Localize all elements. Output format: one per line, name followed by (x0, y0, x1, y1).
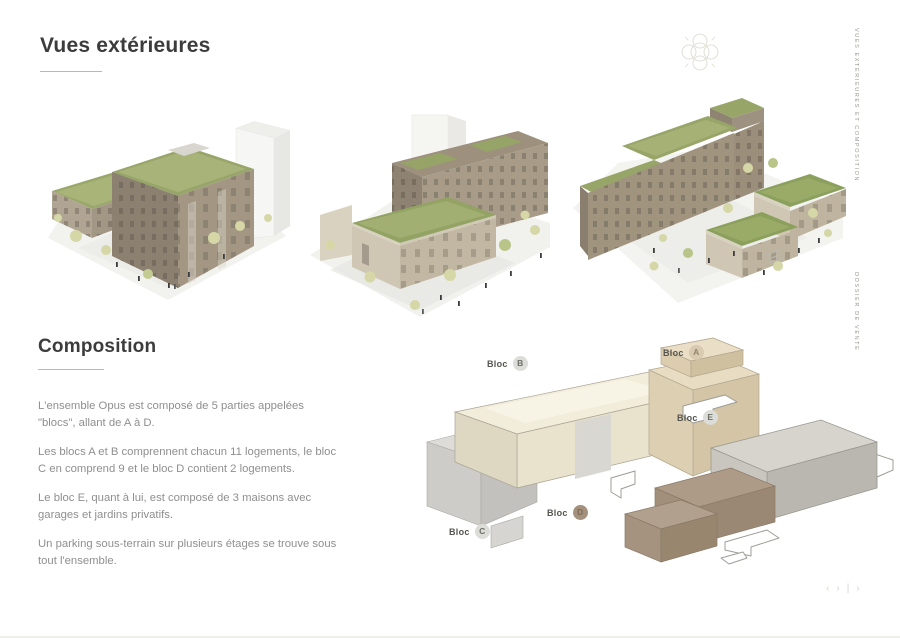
bloc-badge-b: B (513, 356, 528, 371)
bloc-badge-e: E (703, 410, 718, 425)
main-building (112, 143, 254, 288)
brochure-page: Vues extérieures Vues extérieures et com… (0, 0, 900, 638)
composition-paragraph: Un parking sous-terrain sur plusieurs ét… (38, 536, 340, 570)
page-next-icon[interactable]: › (836, 583, 839, 595)
bloc-label-e: Bloc E (677, 410, 718, 425)
pager-divider: | (847, 583, 850, 595)
bloc-label-d: Bloc D (547, 505, 588, 520)
bloc-label-a: Bloc A (663, 345, 704, 360)
bloc-badge-d: D (573, 505, 588, 520)
title-underline (40, 71, 102, 72)
composition-title: Composition (38, 336, 156, 358)
page-prev-icon[interactable]: ‹ (826, 583, 829, 595)
bloc-badge-c: C (475, 524, 490, 539)
pagination: ‹ › | › (826, 583, 860, 595)
blocks-exploded-diagram: Bloc B Bloc A Bloc E Bloc D Bloc C (425, 330, 897, 592)
bloc-word: Bloc (487, 359, 508, 369)
exterior-render-3 (558, 88, 850, 333)
exterior-render-1 (18, 88, 300, 323)
bloc-badge-a: A (689, 345, 704, 360)
page-title: Vues extérieures (40, 34, 211, 58)
rosette-ornament-icon (678, 30, 722, 74)
bloc-label-b: Bloc B (487, 356, 528, 371)
composition-copy: L'ensemble Opus est composé de 5 parties… (38, 398, 340, 582)
bloc-word: Bloc (449, 527, 470, 537)
exterior-render-2 (300, 85, 560, 333)
bloc-label-c: Bloc C (449, 524, 490, 539)
composition-underline (38, 369, 104, 370)
bloc-word: Bloc (677, 413, 698, 423)
composition-paragraph: Le bloc E, quant à lui, est composé de 3… (38, 490, 340, 524)
bloc-word: Bloc (547, 508, 568, 518)
composition-paragraph: L'ensemble Opus est composé de 5 parties… (38, 398, 340, 432)
bloc-d-shape (625, 468, 775, 562)
edge-label-section: Vues extérieures et composition (853, 28, 859, 182)
page-last-icon[interactable]: › (856, 583, 859, 595)
bloc-word: Bloc (663, 348, 684, 358)
composition-paragraph: Les blocs A et B comprennent chacun 11 l… (38, 444, 340, 478)
